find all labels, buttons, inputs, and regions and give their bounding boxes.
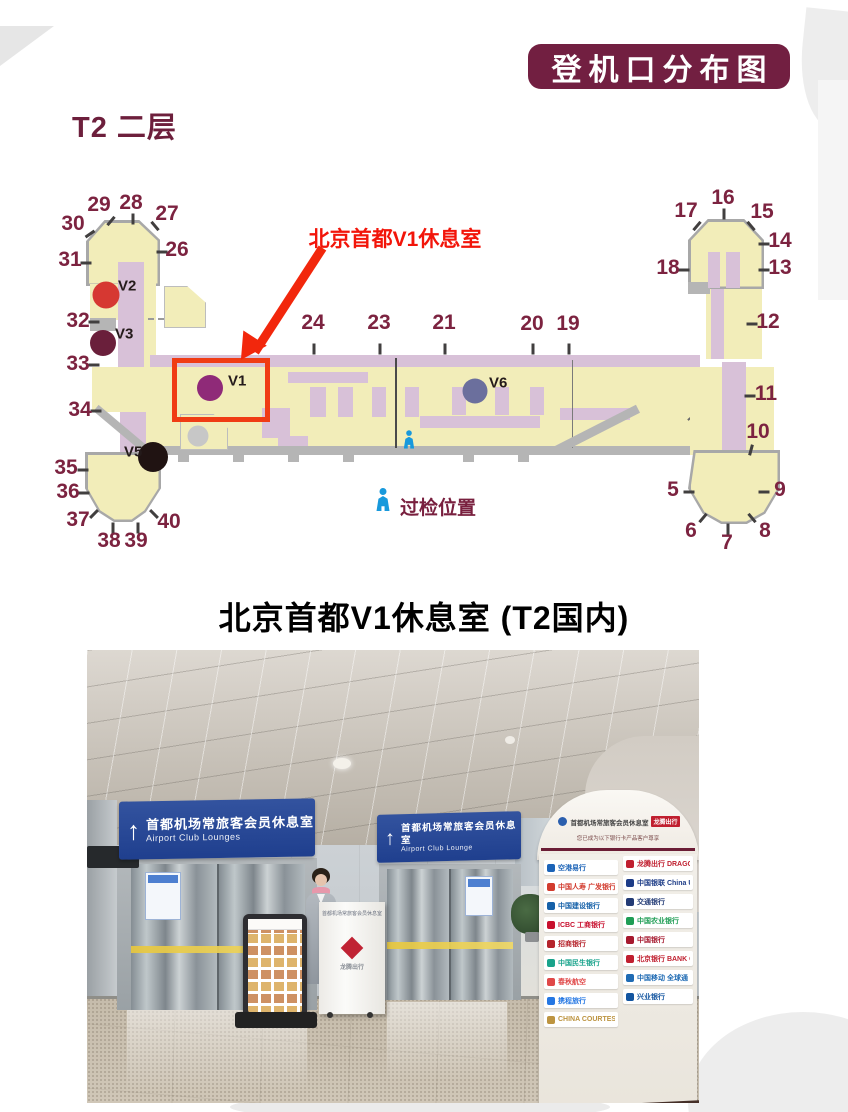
partner-name: 北京银行 BANK OF BEIJING: [637, 954, 690, 964]
partner-logo-icon: [626, 955, 634, 963]
decor-shape: [85, 452, 161, 522]
gate-tick: [150, 221, 159, 231]
decor-shape: [708, 252, 720, 288]
standee-note: 您已成为以下银行卡产品客户尊享: [543, 834, 693, 842]
decor-shape: [92, 367, 154, 412]
decor-shape: [164, 286, 206, 328]
partner-logo-icon: [626, 993, 634, 1001]
decor-shape: 首都机场常旅客会员休息室 Airport Club Lounge: [401, 820, 521, 854]
decor-shape: [688, 282, 710, 294]
gate-number: 35: [54, 456, 77, 480]
gate-number: 17: [674, 199, 697, 223]
gate-number: 23: [367, 311, 390, 335]
decor-shape: [88, 455, 159, 520]
corner-swoosh-decoration: [688, 1012, 848, 1112]
section-title: 北京首都V1休息室 (T2国内): [0, 593, 848, 639]
menu-grid: [248, 919, 302, 1013]
decor-shape: [372, 387, 386, 417]
decor-shape: [310, 387, 326, 417]
partner-logo-icon: [547, 1016, 555, 1024]
gate-number: 19: [556, 312, 579, 336]
floor-reflection: [387, 1002, 507, 1082]
decor-shape: [288, 453, 299, 462]
gate-tick: [112, 523, 115, 534]
partner-chip: 中国移动 全球通: [623, 970, 693, 985]
legend-label: 过检位置: [400, 493, 476, 520]
gate-distribution-map: 登机口分布图 T2 二层: [0, 0, 848, 585]
partner-logo-icon: [547, 902, 555, 910]
gate-tick: [568, 344, 571, 355]
gate-tick: [679, 269, 690, 272]
standee-header-cn: 首都机场常旅客会员休息室: [570, 817, 648, 827]
ceiling-light: [333, 758, 351, 769]
menu-board-base: [235, 1012, 317, 1028]
decor-shape: [711, 287, 724, 359]
decor-shape: [688, 450, 780, 524]
decor-shape: [495, 387, 509, 415]
gate-number: 29: [87, 193, 110, 217]
standee-body: 空港易行 中国人寿 广发银行 中国建设银行 ICBC 工商银行: [539, 854, 697, 1103]
decor-shape: [691, 453, 778, 522]
menu-header: [248, 919, 302, 930]
gate-number: 5: [667, 478, 679, 502]
ceiling-sensor: [505, 736, 515, 744]
partner-chip: 中国人寿 广发银行: [544, 879, 618, 894]
gate-number: 28: [119, 191, 142, 215]
lounge-dot: [90, 330, 116, 356]
standee-footer: 首都机场常旅客会员休息室 T2-V1: [537, 1100, 699, 1103]
decor-shape: [343, 453, 354, 462]
sign-text-cn: 首都机场常旅客会员休息室: [401, 820, 521, 847]
gate-number: 7: [721, 531, 733, 555]
gate-number: 26: [165, 238, 188, 262]
podium-brand: 龙腾出行: [319, 962, 385, 971]
airport-logo-icon: [558, 817, 567, 826]
page: 登机口分布图 T2 二层: [0, 0, 848, 1112]
wheel: [327, 1012, 333, 1018]
partner-chip: 兴业银行: [623, 989, 693, 1004]
decor-shape: [178, 453, 189, 462]
gate-tick: [313, 344, 316, 355]
legend-person-icon: [376, 488, 390, 511]
standee-header-brand: 龙腾出行: [651, 816, 679, 827]
partner-logo-icon: [547, 940, 555, 948]
partner-chip: ICBC 工商银行: [544, 917, 618, 932]
partner-standee: 首都机场常旅客会员休息室 龙腾出行 您已成为以下银行卡产品客户尊享 空港易行 中…: [537, 790, 699, 1103]
partner-logo-icon: [547, 959, 555, 967]
gate-number: 27: [155, 202, 178, 226]
up-arrow-icon: ↑: [385, 827, 395, 850]
gate-number: 6: [685, 519, 697, 543]
partner-name: 中国银行: [637, 935, 665, 945]
partner-chip: 中国民生银行: [544, 955, 618, 970]
gate-tick: [532, 344, 535, 355]
partner-logo-icon: [626, 898, 634, 906]
partner-chip: 中国银联 China UnionPay: [623, 875, 693, 890]
partner-name: 中国人寿 广发银行: [558, 882, 615, 892]
gate-number: 14: [768, 229, 791, 253]
v1-annotation: 北京首都V1休息室: [309, 223, 482, 253]
wheel: [367, 1012, 373, 1018]
up-arrow-icon: ↑: [127, 815, 140, 846]
security-person-icon: [403, 430, 414, 448]
partner-name: 龙腾出行 DRAGONPASS: [637, 859, 690, 869]
gate-number: 21: [432, 311, 455, 335]
left-wall: [87, 800, 117, 1012]
gate-tick: [444, 344, 447, 355]
decor-shape: [118, 262, 144, 284]
sign-text-en: Airport Club Lounges: [146, 830, 314, 843]
partner-chip: 春秋航空: [544, 974, 618, 989]
gate-tick: [89, 509, 99, 519]
partner-name: 兴业银行: [637, 992, 665, 1002]
decor-shape: [518, 453, 529, 462]
partner-chip: 空港易行: [544, 860, 618, 875]
decor-shape: [530, 387, 544, 415]
gate-number: 20: [520, 312, 543, 336]
partner-logo-icon: [626, 936, 634, 944]
floor-label: T2 二层: [72, 104, 177, 146]
partner-chip: 北京银行 BANK OF BEIJING: [623, 951, 693, 966]
partner-logo-icon: [547, 883, 555, 891]
gate-number: 40: [157, 510, 180, 534]
partner-chip: 交通银行: [623, 894, 693, 909]
partner-chip: 招商银行: [544, 936, 618, 951]
partner-name: 交通银行: [637, 897, 665, 907]
decor-shape: [395, 358, 397, 448]
lounge-entrance-photo: ↑ 首都机场常旅客会员休息室 Airport Club Lounges ↑ 首都…: [87, 650, 699, 1103]
decor-shape: [726, 252, 740, 288]
gate-tick: [723, 209, 726, 220]
partner-chip: 中国农业银行: [623, 913, 693, 928]
gate-number: 38: [97, 529, 120, 553]
gate-number: 39: [124, 529, 147, 553]
gate-number: 37: [66, 508, 89, 532]
gate-number: 32: [66, 309, 89, 333]
lounge-direction-sign-right: ↑ 首都机场常旅客会员休息室 Airport Club Lounge: [377, 811, 521, 863]
partner-logo-icon: [626, 974, 634, 982]
caution-strip: [387, 942, 513, 949]
gate-number: 13: [768, 256, 791, 280]
arrow-shaft: [251, 246, 326, 355]
decor-shape: [463, 453, 474, 462]
decor-shape: [722, 362, 746, 454]
decor-shape: [572, 360, 573, 448]
decor-shape: [338, 387, 353, 417]
standee-arch: 首都机场常旅客会员休息室 龙腾出行 您已成为以下银行卡产品客户尊享: [537, 790, 699, 860]
partner-logo-icon: [547, 997, 555, 1005]
lounge-direction-sign-left: ↑ 首都机场常旅客会员休息室 Airport Club Lounges: [119, 798, 315, 859]
elevator-door-gap: [217, 864, 219, 1010]
gate-number: 24: [301, 311, 324, 335]
partner-logo-icon: [547, 921, 555, 929]
gate-number: 33: [66, 352, 89, 376]
partner-name: 中国建设银行: [558, 901, 600, 911]
face: [315, 874, 327, 886]
gate-tick: [149, 509, 159, 519]
gate-number: 18: [656, 256, 679, 280]
partner-column-right: 龙腾出行 DRAGONPASS 中国银联 China UnionPay 交通银行…: [623, 856, 693, 1004]
partner-name: 中国民生银行: [558, 958, 600, 968]
partner-name: 招商银行: [558, 939, 586, 949]
partner-chip: 中国建设银行: [544, 898, 618, 913]
decor-shape: [90, 318, 116, 331]
decor-shape: [233, 453, 244, 462]
decor-shape: [405, 387, 419, 417]
decor-shape: [118, 283, 144, 375]
gate-tick: [727, 524, 730, 535]
partner-logo-icon: [547, 978, 555, 986]
partner-chip: 龙腾出行 DRAGONPASS: [623, 856, 693, 871]
partner-logo-icon: [547, 864, 555, 872]
decor-shape: [420, 416, 540, 428]
decor-shape: 首都机场常旅客会员休息室 Airport Club Lounges: [146, 814, 314, 843]
partner-name: ICBC 工商银行: [558, 920, 605, 930]
decor-shape: 首都机场常旅客会员休息室 龙腾出行: [547, 816, 691, 827]
gate-number: 16: [711, 186, 734, 210]
partner-logo-icon: [626, 879, 634, 887]
partner-name: 空港易行: [558, 863, 586, 873]
decor-shape: [452, 387, 466, 415]
partner-name: 携程旅行: [558, 996, 586, 1006]
elevator-right: [379, 864, 521, 1000]
partner-name: 中国银联 China UnionPay: [637, 878, 690, 888]
partner-logo-icon: [626, 860, 634, 868]
map-title-banner: 登机口分布图: [528, 44, 790, 89]
gate-tick: [137, 523, 140, 534]
elevator-door-gap: [449, 869, 451, 1000]
v1-highlight-box: [172, 358, 270, 422]
elevator-notice: [145, 872, 181, 920]
decor-shape: [278, 436, 308, 446]
gate-number: 15: [750, 200, 773, 224]
brand-podium: 首都机场常旅客会员休息室 龙腾出行: [319, 902, 385, 1014]
decor-shape: [148, 318, 164, 320]
partner-chip: CHINA COURTESY: [544, 1012, 618, 1027]
partner-chip: 携程旅行: [544, 993, 618, 1008]
menu-board: [243, 914, 307, 1018]
elevator-notice: [465, 876, 493, 916]
elevator-door: [387, 869, 449, 1000]
partner-name: 中国农业银行: [637, 916, 679, 926]
gate-number: 8: [759, 519, 771, 543]
gate-number: 30: [61, 212, 84, 236]
partner-name: 中国移动 全球通: [637, 973, 688, 983]
partner-name: CHINA COURTESY: [558, 1016, 615, 1023]
gate-number: 36: [56, 480, 79, 504]
gate-number: 31: [58, 248, 81, 272]
partner-column-left: 空港易行 中国人寿 广发银行 中国建设银行 ICBC 工商银行: [544, 860, 618, 1027]
gate-number: 34: [68, 398, 91, 422]
divider: [541, 848, 695, 851]
gate-tick: [379, 344, 382, 355]
podium-text: 首都机场常旅客会员休息室: [322, 910, 382, 917]
partner-name: 春秋航空: [558, 977, 586, 987]
partner-chip: 中国银行: [623, 932, 693, 947]
decor-shape: [288, 372, 368, 383]
dragonpass-logo-icon: [341, 937, 364, 960]
partner-logo-icon: [626, 917, 634, 925]
